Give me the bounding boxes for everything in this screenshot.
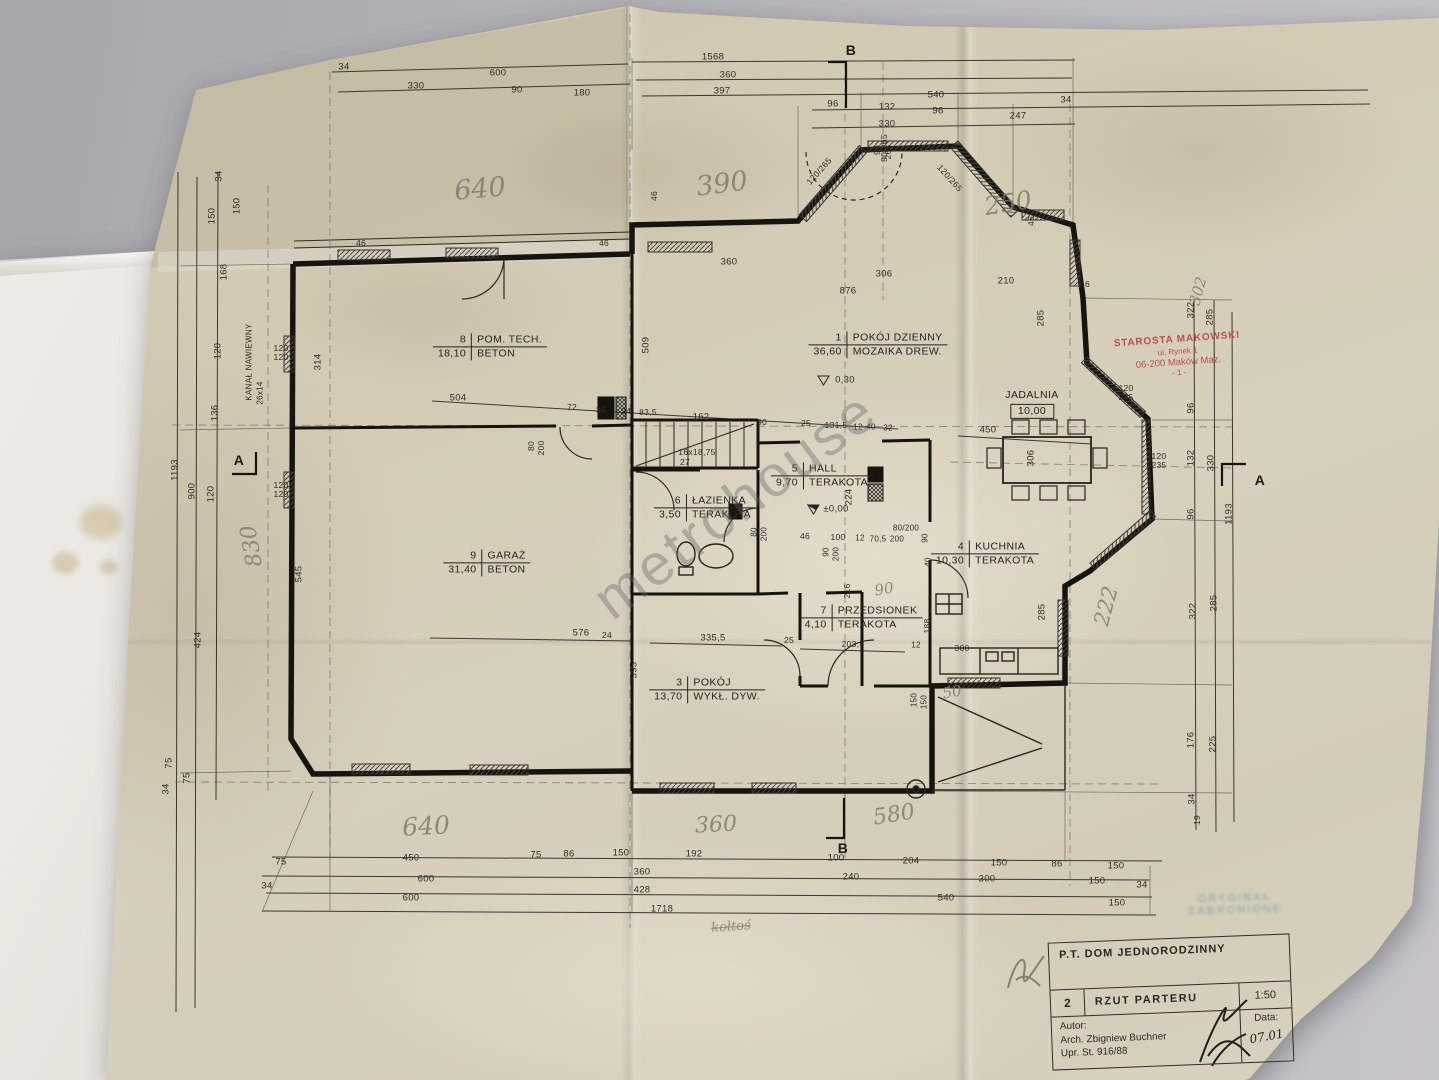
handwritten-note: kołtoś [711,918,752,936]
handwritten-note: 222 [1089,584,1123,629]
handwritten-note: 640 [401,810,450,841]
handwritten-note: 830 [236,523,268,569]
handwritten-note: 390 [695,165,750,202]
photo-of-blueprint: 1568360397540961329634247330902653460033… [0,0,1439,1080]
handwritten-note: 250 [982,185,1034,221]
handwritten-note: 640 [453,171,507,206]
handwritten-note: 90 [873,578,895,599]
drawing-scale: 1:50 [1238,981,1291,1009]
handwritten-note: 302 [1186,275,1211,307]
handwritten-date: 07.01 [1249,1026,1285,1046]
drawing-name: RZUT PARTERU [1085,990,1239,1008]
title-block: P.T. DOM JEDNORODZINNY 2 RZUT PARTERU 1:… [1048,933,1295,1070]
handwritten-note: 360 [694,811,737,838]
date-label: Data: [1240,1011,1291,1024]
handwritten-note: 580 [871,799,916,830]
handwritten-note: 50 [941,681,963,702]
sheet-number: 2 [1050,989,1085,1016]
